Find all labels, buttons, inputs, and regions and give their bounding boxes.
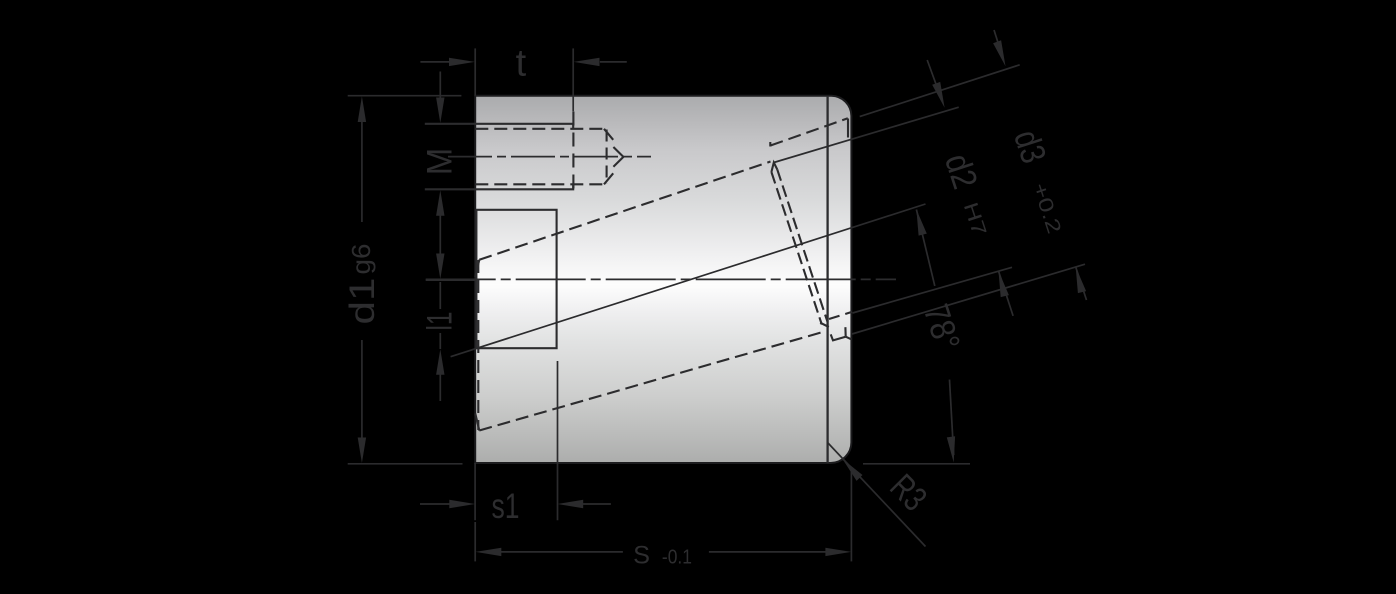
- svg-text:s1: s1: [492, 487, 520, 526]
- svg-text:t: t: [516, 42, 527, 84]
- svg-text:d1: d1: [343, 278, 382, 325]
- svg-text:l1: l1: [421, 312, 460, 331]
- svg-text:-0.1: -0.1: [662, 547, 692, 569]
- svg-text:g6: g6: [346, 244, 376, 275]
- svg-text:M: M: [421, 148, 460, 176]
- svg-text:S: S: [633, 542, 650, 570]
